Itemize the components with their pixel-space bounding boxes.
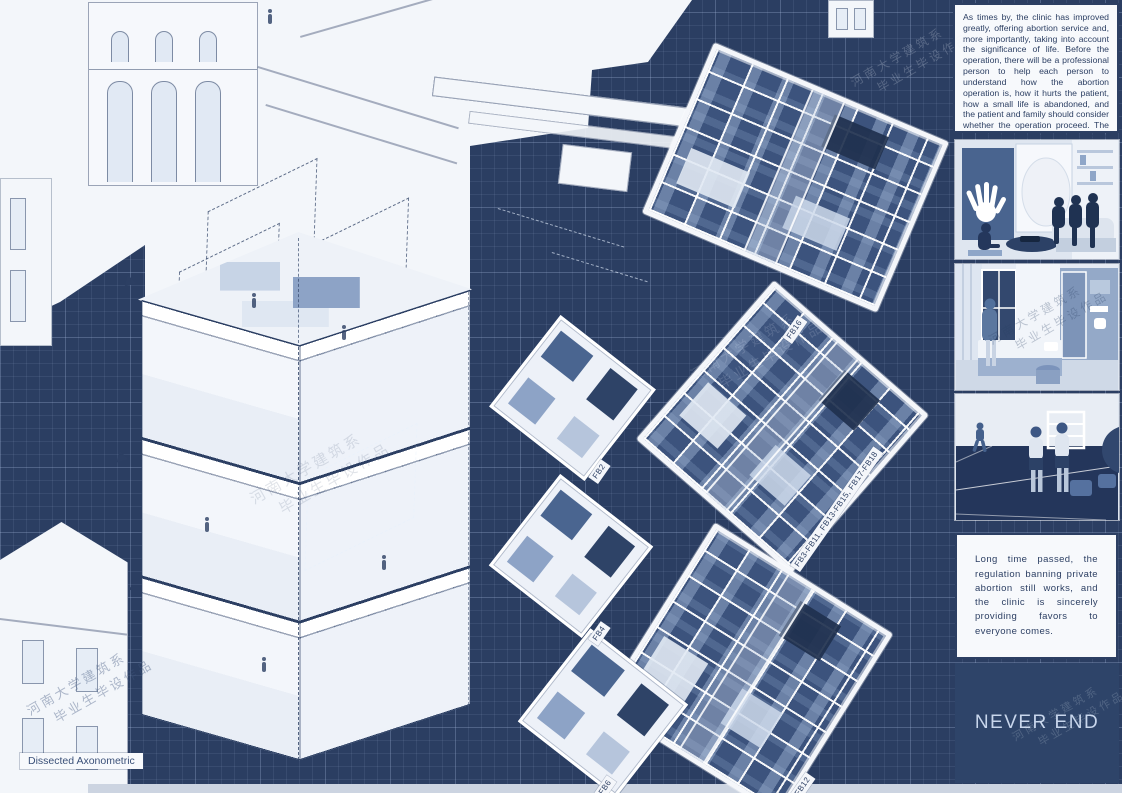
counseling-illustration <box>955 140 1119 259</box>
window <box>836 8 848 30</box>
floor-plan-fb16 <box>642 43 949 313</box>
intro-text-box: As times by, the clinic has improved gre… <box>953 3 1119 133</box>
small-plan-fb2 <box>489 315 656 481</box>
stool <box>1036 365 1060 384</box>
window <box>10 198 26 250</box>
patient-room-illustration <box>955 264 1119 390</box>
patient-room-panel <box>955 264 1119 390</box>
bathroom <box>1060 268 1118 360</box>
corner-cut-line <box>298 238 299 343</box>
arched-window <box>155 31 173 62</box>
presentation-board: FB16 FB3-FB11, FB13-FB15, FB17-FB18 FB12… <box>0 0 1122 793</box>
window <box>10 270 26 322</box>
axon-building-left-face <box>142 300 300 760</box>
corner-cut-line <box>141 300 142 715</box>
corner-cut-line <box>298 347 299 760</box>
human-figure <box>382 560 386 570</box>
window <box>854 8 866 30</box>
building-fragment-drawing <box>828 0 874 38</box>
human-figure <box>252 298 256 308</box>
human-figure <box>342 330 346 340</box>
outro-text-box: Long time passed, the regulation banning… <box>955 533 1118 659</box>
human-figure <box>262 662 266 672</box>
corner-cut-line <box>468 292 469 705</box>
caption-label: Dissected Axonometric <box>20 753 143 769</box>
floor-plan-typical-floors <box>636 281 928 574</box>
section-arrow <box>117 451 131 465</box>
counseling-panel <box>955 140 1119 259</box>
cornice-line <box>89 69 257 70</box>
window <box>22 640 44 684</box>
section-arrow <box>125 275 139 289</box>
pilaster-drawing <box>0 178 52 346</box>
arched-window <box>111 31 129 62</box>
arched-window <box>199 31 217 62</box>
building-fragment-drawing <box>558 144 632 192</box>
arched-window <box>107 81 133 182</box>
human-figure <box>205 522 209 532</box>
dashed-connector <box>552 252 648 282</box>
small-plan-fb4 <box>489 474 653 638</box>
dashed-connector <box>498 208 625 248</box>
rehab-court-illustration <box>955 394 1119 520</box>
never-end-banner: NEVER END <box>955 663 1119 783</box>
rehab-court-panel <box>955 394 1119 520</box>
human-figure <box>268 14 272 24</box>
window <box>76 648 98 692</box>
roof-line <box>0 618 127 635</box>
classical-facade-drawing <box>88 2 258 186</box>
arched-window <box>195 81 221 182</box>
arched-window <box>151 81 177 182</box>
